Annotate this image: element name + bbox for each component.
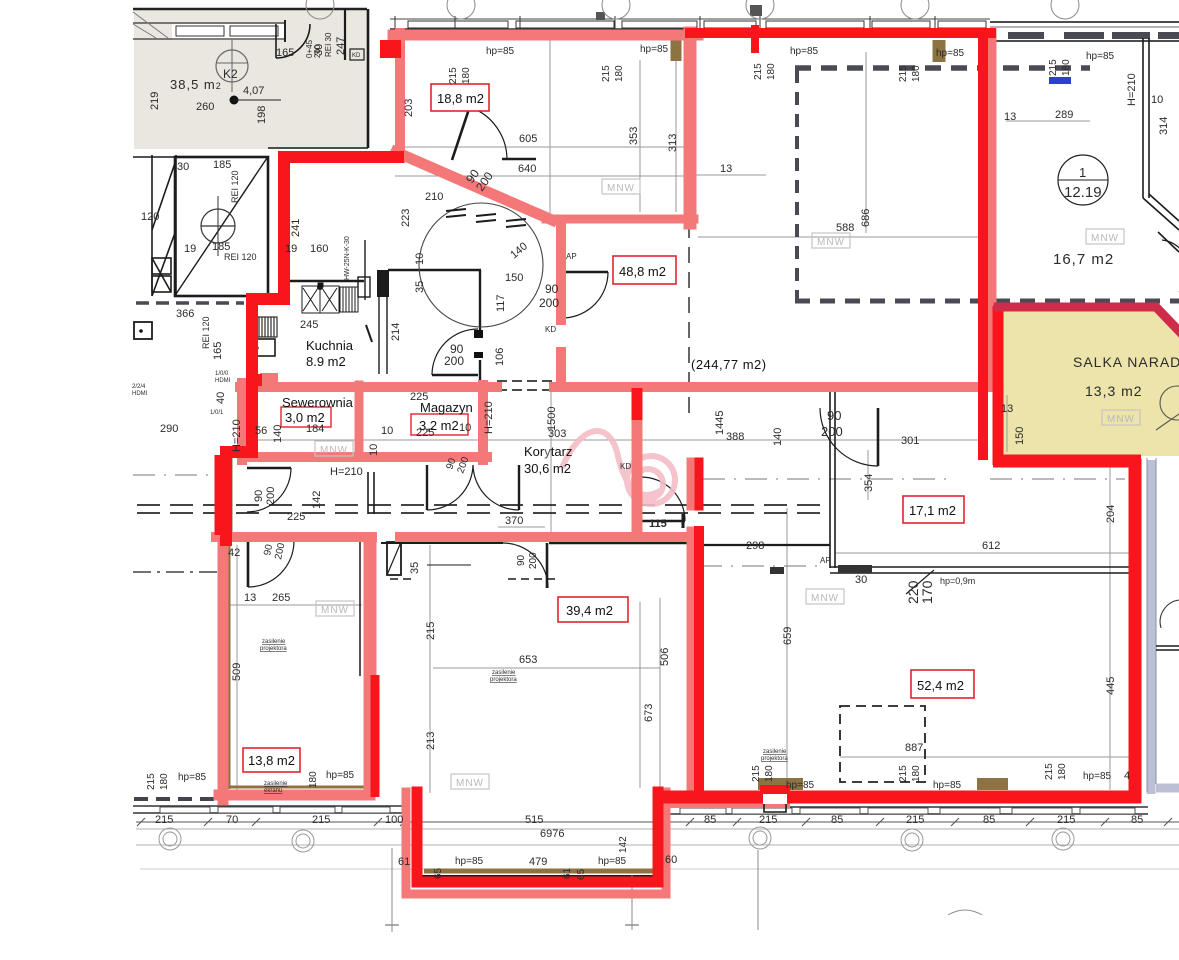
svg-text:MNW: MNW <box>456 778 484 789</box>
svg-text:180: 180 <box>614 65 625 82</box>
svg-text:1500: 1500 <box>546 407 558 431</box>
svg-text:117: 117 <box>495 294 507 312</box>
svg-text:686: 686 <box>860 209 872 227</box>
svg-text:214: 214 <box>390 323 402 341</box>
svg-text:65: 65 <box>576 868 587 880</box>
svg-text:515: 515 <box>525 814 543 826</box>
svg-text:zasilenie: zasilenie <box>264 781 288 787</box>
svg-text:hp=85: hp=85 <box>326 770 355 781</box>
svg-text:10: 10 <box>368 444 380 456</box>
svg-text:hp=85: hp=85 <box>178 772 207 783</box>
svg-text:8.9 m2: 8.9 m2 <box>306 354 346 369</box>
svg-text:215: 215 <box>1044 763 1055 780</box>
svg-text:265: 265 <box>272 592 290 604</box>
svg-text:35: 35 <box>414 281 426 293</box>
svg-text:70: 70 <box>226 814 238 826</box>
svg-text:MNW: MNW <box>811 593 839 604</box>
svg-text:198: 198 <box>256 106 268 124</box>
svg-text:90: 90 <box>827 408 841 423</box>
svg-text:215: 215 <box>425 622 437 640</box>
svg-text:215: 215 <box>753 63 764 80</box>
svg-text:Sewerownia: Sewerownia <box>282 395 354 410</box>
svg-text:225: 225 <box>416 427 434 439</box>
svg-text:38,5 m2: 38,5 m2 <box>170 77 222 92</box>
svg-text:223: 223 <box>400 209 412 227</box>
svg-text:REI 120: REI 120 <box>230 170 240 203</box>
svg-text:10: 10 <box>1151 94 1163 106</box>
svg-text:16,7 m2: 16,7 m2 <box>1053 251 1114 268</box>
svg-text:(244,77 m2): (244,77 m2) <box>691 357 767 372</box>
svg-text:120: 120 <box>141 211 159 223</box>
svg-text:215: 215 <box>1057 814 1075 826</box>
svg-text:353: 353 <box>628 127 640 145</box>
svg-text:165: 165 <box>212 342 224 360</box>
svg-text:hp=0,9m: hp=0,9m <box>940 576 975 586</box>
svg-text:142: 142 <box>618 836 629 853</box>
svg-text:hp=85: hp=85 <box>1083 771 1112 782</box>
svg-text:140: 140 <box>772 428 784 446</box>
svg-text:180: 180 <box>1057 763 1068 780</box>
svg-text:hp=85: hp=85 <box>933 780 962 791</box>
svg-text:projektora: projektora <box>490 677 517 683</box>
svg-text:HDMI: HDMI <box>215 378 231 384</box>
svg-text:1: 1 <box>1079 165 1086 180</box>
svg-text:215: 215 <box>601 65 612 82</box>
svg-text:40: 40 <box>215 392 227 404</box>
svg-text:115: 115 <box>649 518 667 530</box>
svg-text:215: 215 <box>751 765 762 782</box>
svg-text:200: 200 <box>528 552 539 569</box>
svg-text:100: 100 <box>385 814 403 826</box>
svg-text:170: 170 <box>919 580 935 604</box>
svg-text:30: 30 <box>855 574 867 586</box>
svg-text:60: 60 <box>665 854 677 866</box>
svg-text:245: 245 <box>300 319 318 331</box>
svg-text:H=210: H=210 <box>483 401 495 434</box>
svg-text:204: 204 <box>1105 505 1117 523</box>
svg-text:200: 200 <box>313 44 322 58</box>
svg-text:56: 56 <box>255 425 267 437</box>
svg-text:215: 215 <box>312 814 330 826</box>
svg-text:13: 13 <box>1001 403 1013 415</box>
svg-text:298: 298 <box>746 540 764 552</box>
svg-text:887: 887 <box>905 742 923 754</box>
svg-text:200: 200 <box>444 354 464 368</box>
svg-text:210: 210 <box>425 191 443 203</box>
svg-text:142: 142 <box>311 491 323 509</box>
svg-text:509: 509 <box>231 663 243 681</box>
svg-text:215: 215 <box>448 67 459 84</box>
svg-text:185: 185 <box>213 159 231 171</box>
svg-text:85: 85 <box>704 814 716 826</box>
svg-text:200: 200 <box>821 424 843 439</box>
svg-text:AP: AP <box>820 556 831 565</box>
svg-text:1445: 1445 <box>714 411 726 435</box>
svg-text:MNW: MNW <box>1107 414 1135 425</box>
svg-text:REI 30: REI 30 <box>324 32 333 57</box>
svg-text:301: 301 <box>901 435 919 447</box>
svg-text:247: 247 <box>335 37 347 55</box>
svg-text:85: 85 <box>983 814 995 826</box>
svg-text:10: 10 <box>414 253 426 265</box>
svg-text:479: 479 <box>529 856 547 868</box>
svg-text:180: 180 <box>764 765 775 782</box>
svg-text:314: 314 <box>1158 117 1170 135</box>
svg-text:61: 61 <box>398 856 410 868</box>
svg-text:30,6 m2: 30,6 m2 <box>524 461 571 476</box>
svg-text:354: 354 <box>863 474 875 492</box>
svg-text:180: 180 <box>159 773 170 790</box>
svg-text:H=210: H=210 <box>1126 73 1138 106</box>
svg-text:203: 203 <box>403 99 415 117</box>
svg-text:SALKA NARAD: SALKA NARAD <box>1073 354 1179 370</box>
svg-text:KD: KD <box>545 325 556 334</box>
svg-text:H=210: H=210 <box>330 466 363 478</box>
svg-text:projektora: projektora <box>761 756 788 762</box>
svg-text:hp=85: hp=85 <box>598 856 627 867</box>
svg-text:MNW: MNW <box>607 183 635 194</box>
svg-text:200: 200 <box>539 296 559 310</box>
svg-text:hp=85: hp=85 <box>1086 51 1115 62</box>
svg-text:H=210: H=210 <box>231 419 243 452</box>
svg-text:260: 260 <box>196 101 214 113</box>
svg-text:52,4 m2: 52,4 m2 <box>917 678 964 693</box>
svg-text:640: 640 <box>518 163 536 175</box>
svg-text:612: 612 <box>982 540 1000 552</box>
svg-text:225: 225 <box>287 511 305 523</box>
svg-text:4,07: 4,07 <box>243 85 264 97</box>
svg-text:17,1 m2: 17,1 m2 <box>909 503 956 518</box>
svg-text:215: 215 <box>155 814 173 826</box>
svg-text:zasilenie: zasilenie <box>492 670 516 676</box>
svg-text:HDMI: HDMI <box>132 391 148 397</box>
svg-text:366: 366 <box>176 308 194 320</box>
svg-text:Korytarz: Korytarz <box>524 444 572 459</box>
svg-text:MNW: MNW <box>1091 233 1119 244</box>
svg-text:KD: KD <box>352 53 361 59</box>
svg-text:35: 35 <box>409 562 421 574</box>
svg-text:hp=85: hp=85 <box>936 48 965 59</box>
svg-text:180: 180 <box>911 765 922 782</box>
svg-text:zasilenie: zasilenie <box>262 639 286 645</box>
svg-text:hp=85: hp=85 <box>786 780 815 791</box>
svg-text:48,8 m2: 48,8 m2 <box>619 264 666 279</box>
svg-text:18,8 m2: 18,8 m2 <box>437 91 484 106</box>
svg-text:REI 120: REI 120 <box>201 316 211 349</box>
svg-text:653: 653 <box>519 654 537 666</box>
svg-text:180: 180 <box>911 65 922 82</box>
svg-text:90: 90 <box>545 282 559 296</box>
svg-text:588: 588 <box>836 222 854 234</box>
svg-text:10: 10 <box>459 422 471 434</box>
svg-text:225: 225 <box>410 391 428 403</box>
svg-text:219: 219 <box>149 92 161 110</box>
svg-text:2/2/4: 2/2/4 <box>132 384 146 390</box>
svg-text:K2: K2 <box>223 67 238 81</box>
svg-text:1/0/0: 1/0/0 <box>215 371 229 377</box>
svg-text:zasilenie: zasilenie <box>763 749 787 755</box>
svg-text:13,8 m2: 13,8 m2 <box>248 753 295 768</box>
svg-text:106: 106 <box>494 348 506 366</box>
svg-text:12.19: 12.19 <box>1064 184 1102 201</box>
svg-text:605: 605 <box>519 133 537 145</box>
svg-text:42: 42 <box>228 547 240 559</box>
svg-text:215: 215 <box>1048 59 1059 76</box>
svg-text:13,3 m2: 13,3 m2 <box>1085 383 1143 399</box>
svg-text:200: 200 <box>265 487 277 505</box>
svg-text:KD: KD <box>620 462 631 471</box>
svg-text:HW-25N-K-30: HW-25N-K-30 <box>344 236 351 280</box>
svg-text:215: 215 <box>898 65 909 82</box>
svg-text:13: 13 <box>244 592 256 604</box>
svg-text:hp=85: hp=85 <box>640 44 669 55</box>
svg-text:10: 10 <box>381 425 393 437</box>
svg-text:65: 65 <box>433 867 444 879</box>
svg-text:13: 13 <box>720 163 732 175</box>
svg-text:160: 160 <box>310 243 328 255</box>
svg-text:150: 150 <box>505 272 523 284</box>
svg-text:Kuchnia: Kuchnia <box>306 338 354 353</box>
svg-text:6976: 6976 <box>540 828 564 840</box>
svg-text:180: 180 <box>1061 59 1072 76</box>
svg-text:MNW: MNW <box>320 445 348 456</box>
svg-text:hp=85: hp=85 <box>455 856 484 867</box>
svg-text:140: 140 <box>272 425 284 443</box>
svg-text:REI 120: REI 120 <box>224 252 257 262</box>
svg-text:hp=85: hp=85 <box>790 46 819 57</box>
svg-text:180: 180 <box>461 67 472 84</box>
svg-text:MNW: MNW <box>321 605 349 616</box>
svg-text:184: 184 <box>306 423 324 435</box>
svg-text:61: 61 <box>562 867 573 879</box>
svg-text:180: 180 <box>308 771 319 788</box>
svg-text:30: 30 <box>177 161 189 173</box>
svg-text:241: 241 <box>290 219 302 237</box>
svg-text:hp=85: hp=85 <box>486 46 515 57</box>
svg-text:506: 506 <box>659 648 671 666</box>
svg-text:445: 445 <box>1105 677 1117 695</box>
svg-text:215: 215 <box>906 814 924 826</box>
svg-text:290: 290 <box>160 423 178 435</box>
svg-text:370: 370 <box>505 515 523 527</box>
svg-text:85: 85 <box>1131 814 1143 826</box>
svg-text:19: 19 <box>285 243 297 255</box>
svg-text:215: 215 <box>898 765 909 782</box>
svg-text:13: 13 <box>1004 111 1016 123</box>
svg-text:MNW: MNW <box>817 237 845 248</box>
svg-text:215: 215 <box>146 773 157 790</box>
svg-text:165: 165 <box>276 47 294 59</box>
svg-text:388: 388 <box>726 431 744 443</box>
svg-text:19: 19 <box>184 243 196 255</box>
svg-text:673: 673 <box>643 704 655 722</box>
svg-text:ekranu: ekranu <box>264 788 282 794</box>
svg-text:215: 215 <box>759 814 777 826</box>
svg-text:AP: AP <box>566 252 577 261</box>
svg-text:projektora: projektora <box>260 646 287 652</box>
svg-text:150: 150 <box>1014 427 1026 445</box>
svg-text:1/0/1: 1/0/1 <box>210 410 224 416</box>
svg-text:313: 313 <box>667 134 679 152</box>
svg-text:659: 659 <box>782 627 794 645</box>
svg-text:85: 85 <box>831 814 843 826</box>
svg-text:39,4 m2: 39,4 m2 <box>566 603 613 618</box>
svg-text:90: 90 <box>253 490 265 502</box>
svg-text:180: 180 <box>766 63 777 80</box>
svg-text:289: 289 <box>1055 109 1073 121</box>
svg-text:90: 90 <box>516 554 527 566</box>
svg-text:213: 213 <box>425 732 437 750</box>
svg-text:4: 4 <box>1124 770 1130 782</box>
